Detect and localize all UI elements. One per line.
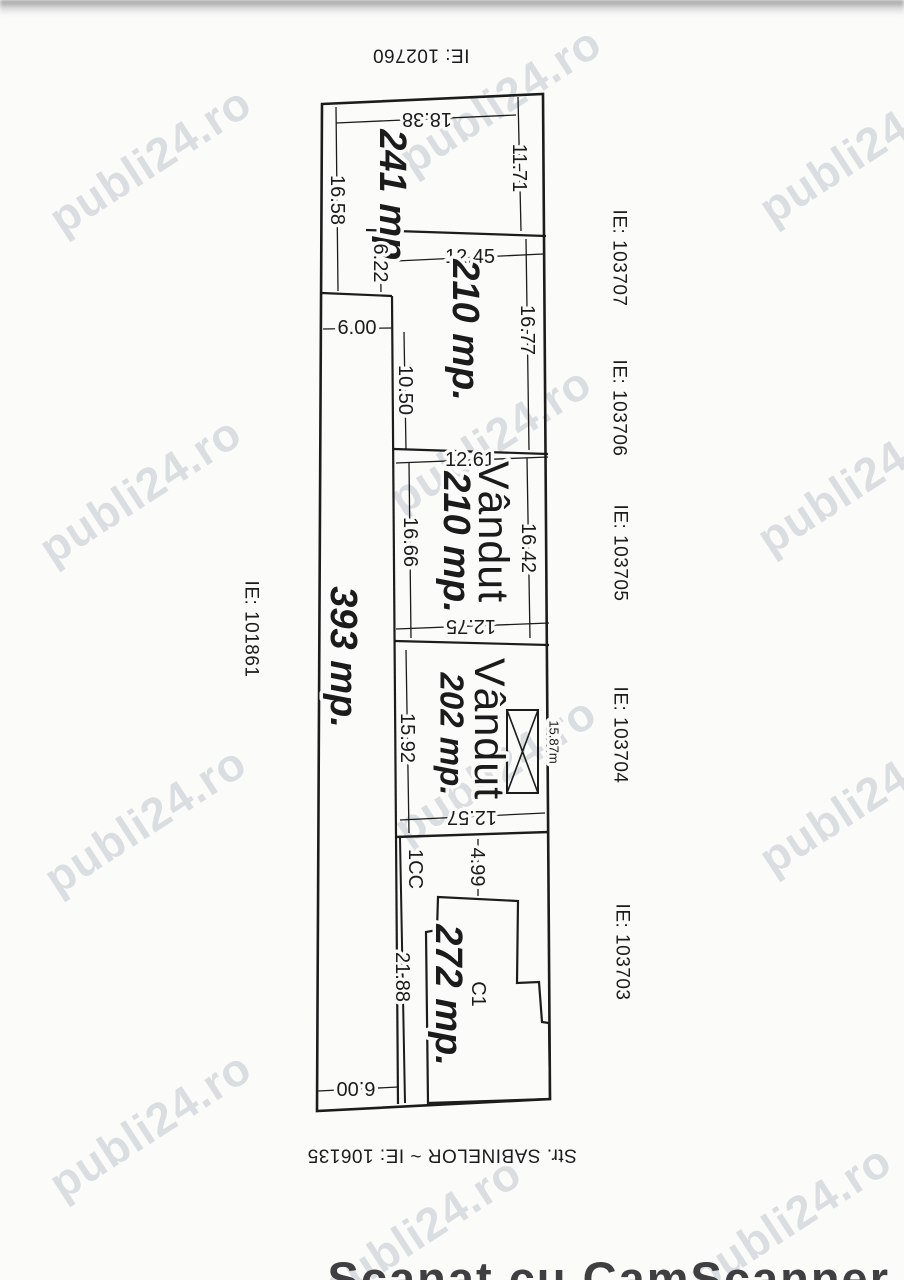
ie-label-103703: IE: 103703: [612, 904, 633, 1001]
boundary-210b-202: [395, 641, 549, 645]
camscanner-footer: Scanat cu CamScanner: [328, 1251, 890, 1280]
cadastral-plan-drawing: IE: 102760 18.38 16.58 11.71 241 mp. 6.2…: [0, 0, 904, 1280]
ie-label-103705: IE: 103705: [610, 505, 631, 602]
area-label-210-first: 210 mp.: [444, 258, 486, 401]
ie-label-102760: IE: 102760: [373, 45, 470, 66]
ie-label-103704: IE: 103704: [610, 687, 631, 784]
dim-6-00-top: 6.00: [338, 317, 377, 339]
dim-16-58: 16.58: [326, 175, 348, 225]
scan-edge-smudge: [0, 0, 904, 16]
dim-21-88: 21.88: [391, 952, 413, 1002]
area-label-210-second: 210 mp.: [435, 470, 477, 613]
sold-label-202: Vândut: [465, 658, 513, 800]
dim-11-71: 11.71: [508, 144, 530, 193]
street-label: Str. SABINELOR ~ IE: 106135: [307, 1145, 577, 1166]
dim-16-66: 16.66: [399, 517, 421, 567]
ie-label-103706: IE: 103706: [609, 360, 630, 457]
dim-12-75: 12.75: [446, 615, 496, 637]
dim-4-99: 4.99: [466, 848, 488, 887]
strip-top-boundary: [322, 293, 392, 296]
area-label-202: 202 mp.: [434, 672, 471, 796]
dim-6-00-bottom: 6.00: [337, 1077, 376, 1099]
dim-10-50: 10.50: [394, 365, 416, 415]
area-label-393: 393 mp.: [322, 586, 364, 728]
dim-18-38: 18.38: [402, 108, 452, 130]
dim-16-77: 16.77: [516, 305, 538, 355]
boundary-202-272: [395, 832, 549, 837]
dim-15-87m: 15.87m: [547, 720, 562, 763]
scanned-cadastral-plan: publi24.ropubli24.ropubli24.ropubli24.ro…: [0, 0, 904, 1280]
ie-label-101861: IE: 101861: [241, 581, 262, 678]
area-label-272: 272 mp.: [427, 923, 469, 1066]
code-label-1cc: 1CC: [404, 849, 426, 889]
dim-12-57: 12.57: [447, 806, 497, 828]
dim-6-22: 6.22: [369, 244, 391, 283]
code-label-c1: C1: [467, 981, 489, 1007]
dim-15-92: 15.92: [396, 713, 418, 763]
ie-label-103707: IE: 103707: [609, 210, 630, 307]
dim-16-42: 16.42: [517, 523, 539, 573]
